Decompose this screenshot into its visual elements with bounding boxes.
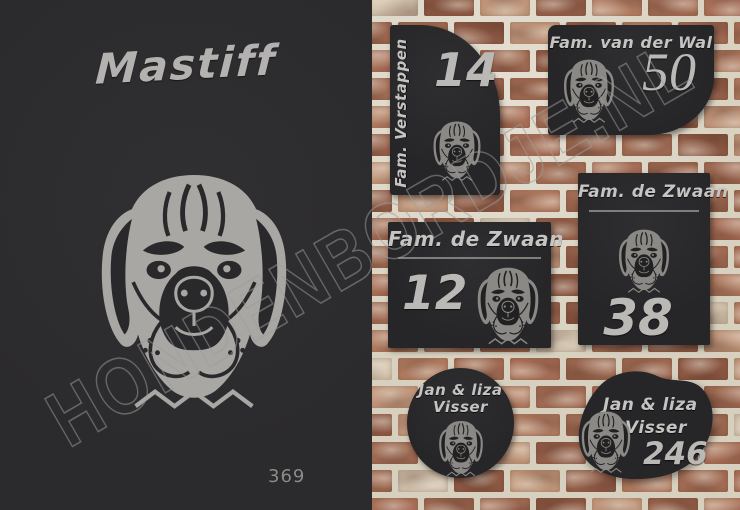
brick [372, 78, 392, 100]
brick [480, 0, 530, 16]
mastiff-head-icon [556, 55, 622, 125]
plate-visser-circle: Jan & liza Visser [407, 368, 514, 478]
house-number: 50 [642, 45, 696, 99]
brick [592, 498, 642, 510]
brick [480, 498, 530, 510]
brick [510, 414, 560, 436]
brick [536, 498, 586, 510]
mastiff-head-icon [426, 117, 488, 183]
brick [734, 22, 740, 44]
design-number: 369 [268, 466, 305, 487]
brick [424, 0, 474, 16]
brick [648, 0, 698, 16]
brick [734, 358, 740, 380]
brick [734, 302, 740, 324]
brick [622, 134, 672, 156]
brick [372, 470, 392, 492]
breed-title: Mastiff [0, 30, 374, 98]
brick [536, 0, 586, 16]
brick [734, 134, 740, 156]
house-number: 12 [402, 270, 467, 317]
family-name: Fam. de Zwaan [388, 227, 551, 251]
brick [372, 498, 418, 510]
family-name-line2: Visser [433, 398, 488, 416]
plate-de-zwaan-landscape: Fam. de Zwaan 12 [388, 222, 551, 348]
family-name: Fam. Verstappen [392, 31, 412, 195]
brick [372, 358, 392, 380]
brick [704, 106, 740, 128]
brick [734, 414, 740, 436]
house-number: 14 [434, 47, 498, 93]
sample-panel: Mastiff 369 [0, 0, 372, 510]
divider-line [398, 257, 541, 259]
brick [372, 0, 418, 16]
brick [734, 470, 740, 492]
brick-wall-display: Fam. Verstappen 14 Fam. van der Wal 50 F… [372, 0, 740, 510]
brick [510, 358, 560, 380]
brick [372, 414, 392, 436]
mastiff-head-icon [72, 158, 316, 416]
plate-verstappen: Fam. Verstappen 14 [390, 25, 500, 195]
mastiff-head-icon [611, 225, 677, 295]
plate-van-der-wal: Fam. van der Wal 50 [548, 25, 714, 135]
plate-de-zwaan-portrait: Fam. de Zwaan 38 [578, 173, 710, 345]
divider-line [589, 210, 699, 212]
brick [372, 22, 392, 44]
house-number: 246 [643, 439, 708, 470]
house-number: 38 [572, 293, 704, 343]
brick [704, 0, 740, 16]
brick [678, 134, 728, 156]
family-name-line1: Jan & liza [418, 381, 502, 399]
brick [510, 470, 560, 492]
brick [704, 498, 740, 510]
brick [648, 498, 698, 510]
brick [734, 246, 740, 268]
brick [734, 190, 740, 212]
brick [592, 0, 642, 16]
family-name: Fam. de Zwaan [578, 182, 710, 202]
plate-visser-blob: Jan & liza Visser 246 [563, 365, 715, 485]
brick [424, 498, 474, 510]
mastiff-head-icon [574, 407, 638, 475]
brick [510, 190, 560, 212]
brick [510, 134, 560, 156]
product-image: Mastiff 369 Fam. Verstappen 14 Fam. van … [0, 0, 740, 510]
brick [734, 78, 740, 100]
mastiff-head-icon [468, 262, 548, 347]
brick [566, 134, 616, 156]
brick [372, 134, 392, 156]
brick [372, 190, 392, 212]
mastiff-head-icon [429, 417, 493, 478]
